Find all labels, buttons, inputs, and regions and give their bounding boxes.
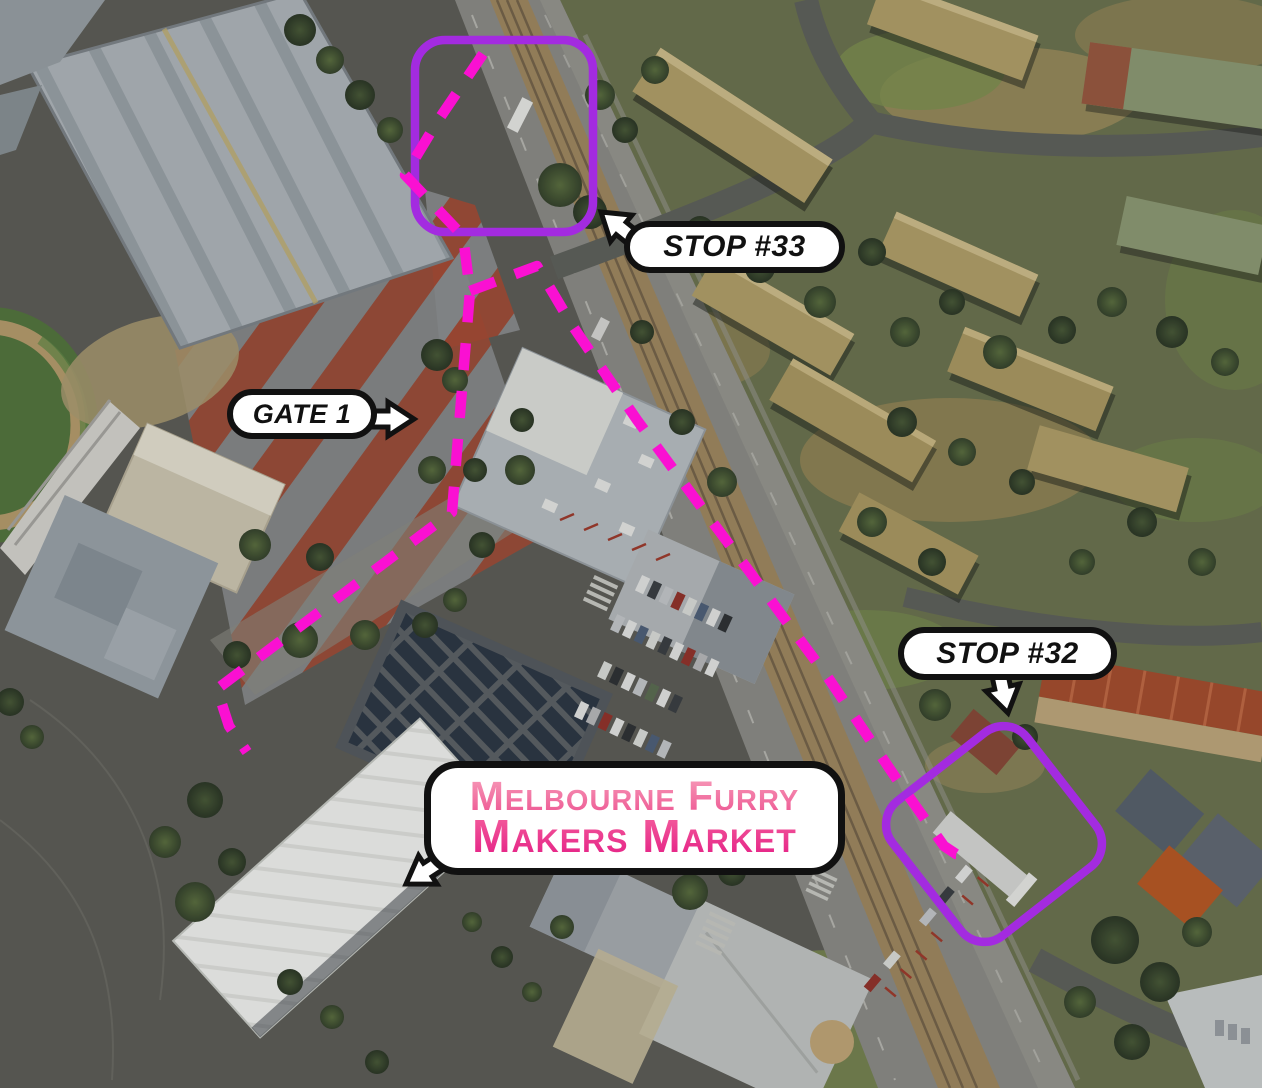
callout-gate1: GATE 1 (227, 389, 377, 439)
market-title-line2: Makers Market (472, 813, 797, 860)
callout-stop33: STOP #33 (624, 221, 845, 273)
satellite-basemap (0, 0, 1262, 1088)
callout-market: Melbourne Furry Makers Market (424, 761, 845, 875)
callout-stop32-label: STOP #32 (936, 637, 1078, 671)
map-stage: STOP #33 GATE 1 STOP #32 Melbourne Furry… (0, 0, 1262, 1088)
callout-gate1-label: GATE 1 (253, 399, 352, 430)
callout-stop32: STOP #32 (898, 627, 1117, 680)
callout-stop33-label: STOP #33 (663, 230, 805, 264)
